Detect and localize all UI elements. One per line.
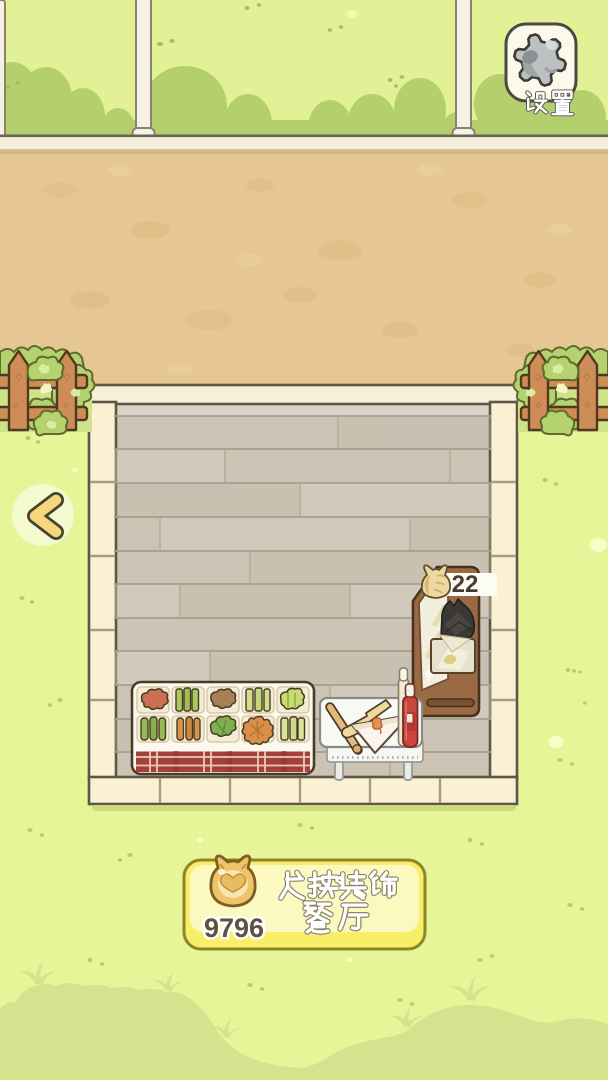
svg-text:9796: 9796 (204, 913, 264, 943)
svg-text:22: 22 (452, 571, 479, 598)
